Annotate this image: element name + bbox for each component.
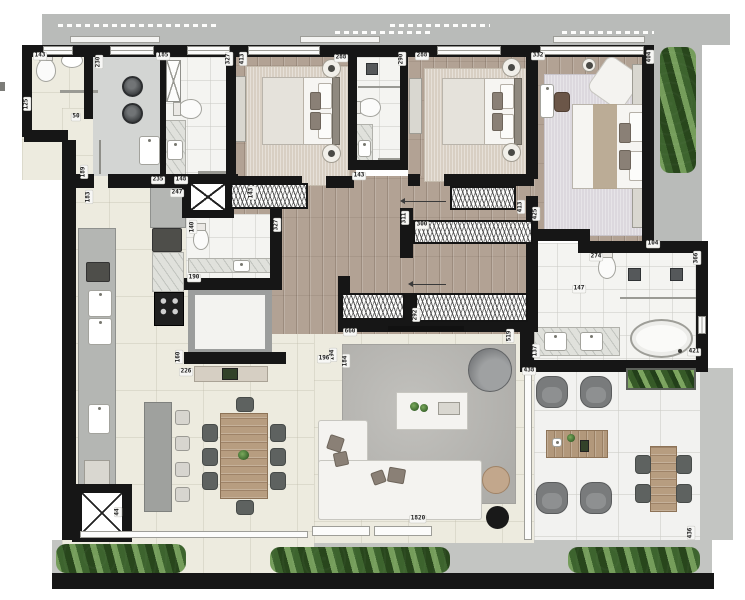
dimension-label: 148	[175, 177, 188, 184]
dimension-label: 137	[533, 345, 540, 358]
dimension-label: 288	[335, 55, 348, 62]
dimension-label: 327	[274, 219, 281, 232]
dimension-label: 190	[188, 275, 201, 282]
dimension-label: 1820	[410, 516, 426, 523]
dimension-label: 143	[249, 187, 256, 200]
dimension-label: 235	[152, 177, 165, 184]
dimension-label: 104	[647, 241, 660, 248]
dimension-label: 366	[694, 252, 701, 265]
dimension-label: 189	[81, 166, 88, 179]
dimension-label: 332	[532, 53, 545, 60]
dimension-label: 311	[402, 212, 409, 225]
dimension-label: 404	[647, 51, 654, 64]
dimension-label: 438	[523, 368, 536, 375]
dimension-label: 425	[533, 208, 540, 221]
dimension-label: 194	[330, 349, 337, 362]
dimension-label: 143	[353, 173, 366, 180]
dimension-label: 226	[180, 369, 193, 376]
dimension-label: 230	[96, 56, 103, 69]
dimension-label: 660	[344, 329, 357, 336]
dimension-labels-layer: 1431255023018918318523514832741314328829…	[0, 0, 745, 600]
dimension-label: 290	[399, 53, 406, 66]
dimension-label: 140	[190, 221, 197, 234]
dimension-label: 413	[518, 201, 525, 214]
dimension-label: 143	[34, 53, 47, 60]
floor-plan: 1431255023018918318523514832741314328829…	[0, 0, 745, 600]
dimension-label: 327	[226, 53, 233, 66]
dimension-label: 183	[86, 191, 93, 204]
dimension-label: 288	[416, 53, 429, 60]
dimension-label: 413	[240, 53, 247, 66]
dimension-label: 421	[688, 349, 701, 356]
dimension-label: 519	[507, 330, 514, 343]
dimension-label: 300	[416, 222, 429, 229]
dimension-label: 185	[157, 53, 170, 60]
dimension-label: 247	[171, 190, 184, 197]
dimension-label: 292	[413, 309, 420, 322]
dimension-label: 436	[688, 527, 695, 540]
dimension-label: 184	[343, 355, 350, 368]
dimension-label: 44	[115, 507, 122, 516]
dimension-label: 196	[318, 356, 331, 363]
dimension-label: 147	[573, 286, 586, 293]
dimension-label: 160	[176, 351, 183, 364]
dimension-label: 125	[24, 98, 31, 111]
dimension-label: 274	[590, 254, 603, 261]
dimension-label: 50	[71, 114, 80, 121]
